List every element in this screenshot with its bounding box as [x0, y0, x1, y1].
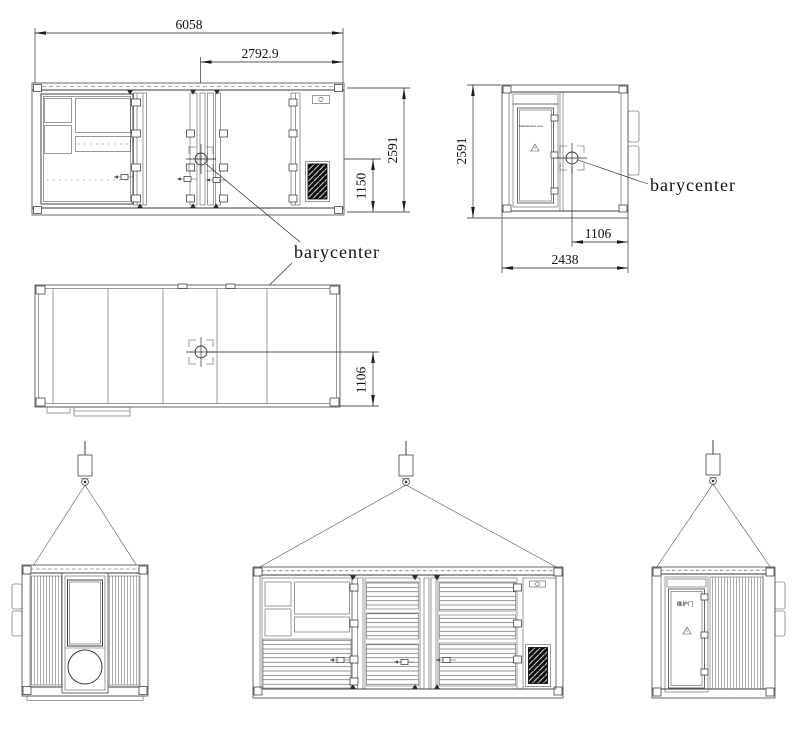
corner-fitting — [36, 286, 45, 294]
lift-left-container — [12, 565, 148, 701]
corner-fitting — [619, 86, 627, 93]
container-barycenter-drawing: 6058 2792.9 2591 1150 — [0, 0, 800, 735]
louver-panel — [367, 613, 419, 639]
corner-fitting — [335, 207, 343, 214]
roof-fitting — [178, 284, 187, 289]
corrugated-wall — [108, 576, 139, 685]
corner-fitting — [619, 205, 627, 212]
door-hinge — [701, 632, 708, 638]
lift-right-container: 维护门 — [652, 567, 785, 698]
corner-fitting — [653, 688, 661, 696]
door-hinge — [551, 115, 558, 121]
dim-text-cg-x: 2792.9 — [241, 46, 278, 61]
corrugated-wall — [710, 577, 763, 689]
dim-text-length: 6058 — [176, 17, 203, 32]
corner-fitting — [23, 566, 31, 574]
door-hinge — [551, 188, 558, 194]
end-maintenance-door: Maintenance door — [513, 94, 558, 207]
corner-fitting — [330, 286, 339, 294]
louver-panel — [367, 644, 419, 686]
dark-vent-grille — [308, 164, 327, 199]
corner-fitting — [766, 688, 774, 696]
louver-panel — [440, 615, 516, 639]
plan-view: 1106 — [35, 284, 379, 416]
door-hinge — [701, 594, 708, 600]
lift-side-container — [253, 567, 563, 698]
door-sign-label: Maintenance door — [519, 124, 544, 128]
louver-panel — [263, 639, 351, 688]
louver-panel — [440, 582, 516, 611]
corner-fitting — [335, 85, 343, 92]
lift-left-center-panel — [62, 573, 108, 693]
corner-fitting — [653, 568, 661, 576]
door-hinge — [701, 669, 708, 675]
dim-text-cg-offset: 1106 — [585, 226, 612, 241]
corner-fitting — [36, 398, 45, 406]
corrugated-wall — [31, 576, 62, 685]
dim-text-cg-height: 1150 — [354, 173, 369, 200]
corner-fitting — [766, 568, 774, 576]
lift-side-mid-section — [365, 578, 420, 689]
barycenter-label-right: barycenter — [650, 175, 736, 195]
corner-fitting — [34, 85, 42, 92]
end-container-body: Maintenance door — [502, 85, 639, 218]
corner-fitting — [139, 687, 147, 695]
engineering-drawing-page: 6058 2792.9 2591 1150 — [0, 0, 800, 735]
louver-panel — [440, 643, 516, 686]
corner-fitting — [554, 568, 562, 576]
corner-fitting — [330, 398, 339, 406]
roof-fitting — [226, 284, 235, 289]
lift-side-right-mid-section — [438, 578, 522, 689]
side-container-body — [32, 83, 344, 215]
dim-text-end-height: 2591 — [454, 138, 469, 165]
corner-fitting — [254, 568, 262, 576]
corner-fitting — [23, 687, 31, 695]
dim-text-end-width: 2438 — [552, 252, 579, 267]
lift-maintenance-door: 维护门 — [665, 577, 708, 692]
barycenter-label-left: barycenter — [294, 242, 380, 262]
dim-text-side-height: 2591 — [385, 137, 400, 164]
door-sign-label: 维护门 — [677, 600, 694, 608]
louver-panel — [367, 582, 419, 609]
corner-fitting — [503, 86, 511, 93]
corner-fitting — [554, 687, 562, 695]
corner-fitting — [139, 566, 147, 574]
dim-text-plan-cg-offset: 1106 — [354, 367, 369, 394]
door-hinge — [551, 152, 558, 158]
corner-fitting — [34, 207, 42, 214]
dark-vent-grille — [529, 648, 548, 684]
corner-fitting — [254, 687, 262, 695]
corner-fitting — [503, 205, 511, 212]
